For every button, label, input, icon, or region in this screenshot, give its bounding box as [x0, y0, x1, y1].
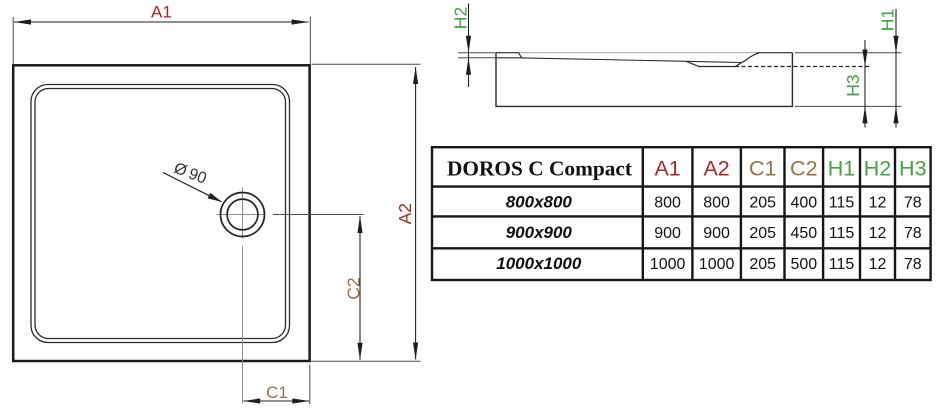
svg-text:H2: H2: [451, 7, 471, 29]
svg-text:900: 900: [654, 225, 681, 242]
svg-text:400: 400: [790, 195, 817, 212]
svg-text:C1: C1: [266, 383, 288, 402]
svg-text:205: 205: [749, 256, 776, 273]
svg-text:1000: 1000: [699, 256, 735, 273]
svg-text:H1: H1: [878, 9, 898, 31]
svg-text:1000x1000: 1000x1000: [496, 254, 582, 273]
svg-text:78: 78: [904, 256, 922, 273]
svg-text:H3: H3: [899, 157, 927, 181]
svg-text:12: 12: [869, 195, 887, 212]
svg-text:C1: C1: [749, 157, 776, 181]
svg-text:500: 500: [790, 256, 817, 273]
svg-text:115: 115: [829, 256, 855, 273]
svg-text:A1: A1: [151, 3, 172, 22]
svg-text:H1: H1: [828, 157, 855, 181]
svg-text:12: 12: [869, 225, 887, 242]
svg-text:H3: H3: [843, 74, 863, 96]
svg-text:1000: 1000: [650, 256, 686, 273]
svg-text:78: 78: [904, 195, 922, 212]
svg-text:800: 800: [654, 195, 681, 212]
svg-text:900x900: 900x900: [506, 223, 573, 242]
svg-text:DOROS C Compact: DOROS C Compact: [447, 157, 633, 181]
svg-text:A2: A2: [703, 157, 729, 181]
svg-text:450: 450: [790, 225, 817, 242]
svg-text:115: 115: [829, 195, 855, 212]
svg-text:C2: C2: [790, 157, 817, 181]
svg-text:H2: H2: [864, 157, 891, 181]
svg-text:A1: A1: [654, 157, 680, 181]
svg-text:800x800: 800x800: [506, 193, 573, 212]
svg-text:115: 115: [829, 225, 855, 242]
svg-text:800: 800: [703, 195, 730, 212]
svg-text:12: 12: [869, 256, 887, 273]
svg-text:900: 900: [703, 225, 730, 242]
svg-text:78: 78: [904, 225, 922, 242]
svg-text:A2: A2: [395, 203, 415, 224]
svg-text:205: 205: [749, 195, 776, 212]
svg-text:C2: C2: [344, 277, 364, 299]
svg-text:205: 205: [749, 225, 776, 242]
